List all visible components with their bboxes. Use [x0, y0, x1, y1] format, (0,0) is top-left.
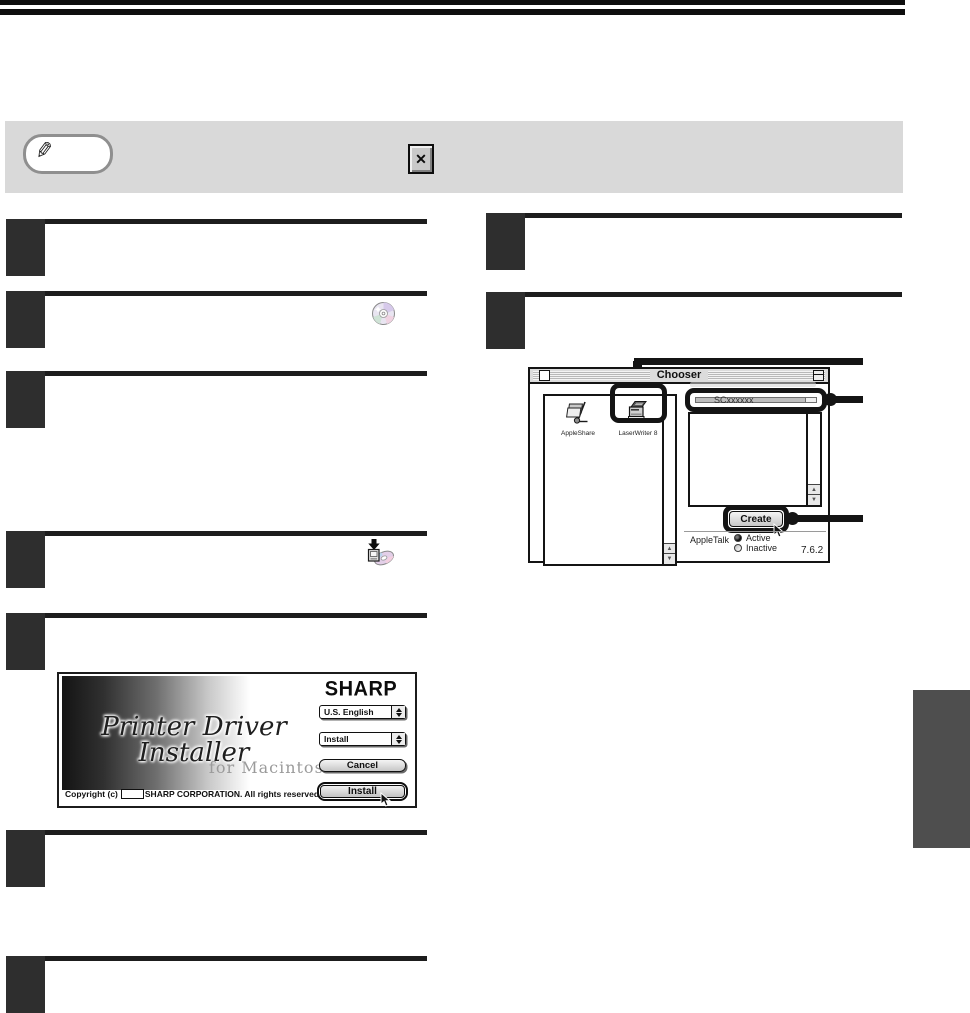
- step-8-marker: [486, 213, 525, 270]
- callout-line-create: [792, 515, 863, 522]
- step-3-marker: [6, 371, 45, 428]
- close-icon: ✕: [408, 144, 434, 174]
- step-5-rule: [45, 613, 427, 618]
- copyright-line: Copyright (c) SHARP CORPORATION. All rig…: [65, 789, 321, 799]
- mouse-cursor-icon: [379, 792, 393, 808]
- step-9-marker: [486, 292, 525, 349]
- sharp-logo: SHARP: [317, 679, 405, 700]
- window-collapse-box[interactable]: [813, 370, 824, 381]
- appleshare-icon: [565, 400, 591, 424]
- window-title: Chooser: [650, 370, 709, 381]
- scroll-down-arrow-icon[interactable]: ▼: [808, 494, 820, 505]
- updown-arrows-icon: [391, 733, 405, 745]
- appletalk-label: AppleTalk: [690, 536, 729, 545]
- callout-line-laserwriter: [634, 358, 863, 365]
- step-1-marker: [6, 219, 45, 276]
- header-rule-bottom: [0, 9, 905, 15]
- updown-arrows-icon: [391, 706, 405, 718]
- laserwriter-callout-ring: [610, 383, 667, 423]
- printer-name: SCxxxxxx: [696, 395, 805, 405]
- installer-app-icon: [362, 538, 396, 570]
- appletalk-inactive-radio[interactable]: [734, 544, 742, 552]
- manual-page: ✎ ✕: [0, 0, 970, 1013]
- step-2-rule: [45, 291, 427, 296]
- cd-rom-icon: [371, 301, 396, 326]
- install-button[interactable]: Install: [317, 782, 408, 801]
- step-4-marker: [6, 531, 45, 588]
- cancel-button[interactable]: Cancel: [319, 759, 406, 772]
- appletalk-separator: [684, 531, 826, 532]
- step-6-marker: [6, 830, 45, 887]
- callout-line-printer-name: [830, 396, 863, 403]
- printer-list-scrollbar[interactable]: ▲ ▼: [806, 414, 820, 505]
- appleshare-label: AppleShare: [553, 430, 603, 437]
- step-1-rule: [45, 219, 427, 224]
- logo-placeholder-box: [121, 789, 144, 799]
- step-7-marker: [6, 956, 45, 1013]
- note-box: ✎ ✕: [5, 121, 903, 193]
- laserwriter-label: LaserWriter 8: [613, 430, 663, 437]
- ghost-caption: [690, 382, 816, 387]
- action-select-value: Install: [320, 733, 391, 745]
- step-2-marker: [6, 291, 45, 348]
- device-appleshare[interactable]: AppleShare: [553, 400, 603, 437]
- step-7-rule: [45, 956, 427, 961]
- chooser-window: Chooser ▲ ▼ App: [528, 367, 830, 563]
- step-6-rule: [45, 830, 427, 835]
- section-tab: [913, 690, 970, 848]
- step-4-rule: [45, 531, 427, 536]
- language-select[interactable]: U.S. English: [319, 705, 406, 719]
- note-badge: ✎: [23, 134, 113, 174]
- device-panel-scrollbar[interactable]: ▲ ▼: [662, 396, 675, 564]
- copyright-prefix: Copyright (c): [65, 789, 118, 799]
- pencil-icon: ✎: [34, 139, 55, 163]
- header-rule-top: [0, 0, 905, 5]
- language-select-value: U.S. English: [320, 706, 391, 718]
- printer-name-row[interactable]: SCxxxxxx: [695, 397, 817, 403]
- step-9-rule: [525, 292, 902, 297]
- action-select[interactable]: Install: [319, 732, 406, 746]
- copyright-suffix: SHARP CORPORATION. All rights reserved.: [145, 789, 322, 799]
- printer-list-box: ▲ ▼: [688, 412, 822, 507]
- step-8-rule: [525, 213, 902, 218]
- appletalk-inactive-label: Inactive: [746, 544, 777, 553]
- chooser-figure: Chooser ▲ ▼ App: [528, 358, 873, 563]
- step-3-rule: [45, 371, 427, 376]
- window-close-box[interactable]: [539, 370, 550, 381]
- printer-row-scroll-stub: [805, 398, 816, 402]
- appletalk-active-radio[interactable]: [734, 534, 742, 542]
- installer-dialog-figure: Printer Driver Installer for Macintosh C…: [57, 672, 417, 808]
- step-5-marker: [6, 613, 45, 670]
- scroll-down-arrow-icon[interactable]: ▼: [664, 553, 675, 564]
- printer-name-callout-ring: SCxxxxxx: [685, 388, 827, 412]
- appletalk-active-label: Active: [746, 534, 771, 543]
- create-button-callout-ring: Create: [723, 505, 789, 533]
- chooser-version: 7.6.2: [801, 546, 823, 556]
